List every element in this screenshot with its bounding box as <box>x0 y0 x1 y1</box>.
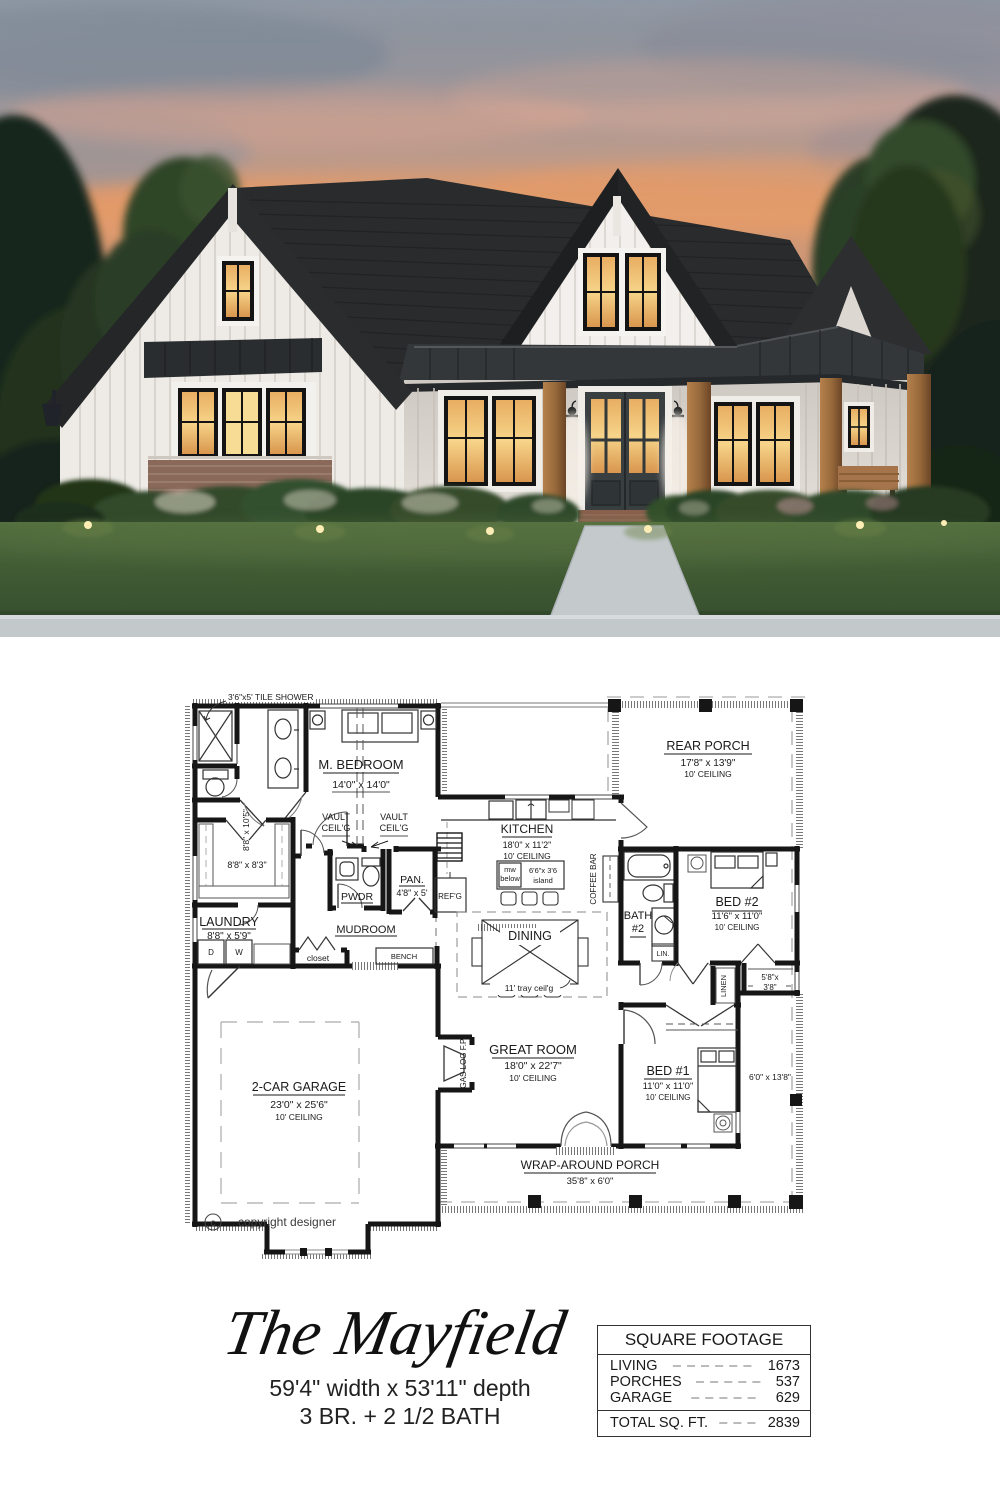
svg-text:8'8" x 8'3": 8'8" x 8'3" <box>227 860 266 870</box>
svg-text:COFFEE BAR: COFFEE BAR <box>589 853 598 904</box>
svg-text:17'8" x 13'9": 17'8" x 13'9" <box>681 758 736 769</box>
svg-text:VAULT: VAULT <box>322 812 350 822</box>
svg-text:REF'G: REF'G <box>438 892 462 901</box>
svg-text:CEIL'G: CEIL'G <box>322 823 351 833</box>
svg-text:below: below <box>500 874 520 883</box>
svg-text:LINEN: LINEN <box>719 975 728 997</box>
svg-text:35'8" x 6'0": 35'8" x 6'0" <box>567 1176 614 1187</box>
svg-text:5'8"x: 5'8"x <box>761 973 778 982</box>
svg-text:10' CEILING: 10' CEILING <box>503 851 550 861</box>
svg-text:KITCHEN: KITCHEN <box>501 822 554 836</box>
svg-text:6'6"x 3'6: 6'6"x 3'6 <box>529 866 557 875</box>
svg-text:VAULT: VAULT <box>380 812 408 822</box>
svg-text:c: c <box>211 1218 216 1229</box>
svg-text:11'0" x 11'0": 11'0" x 11'0" <box>643 1081 694 1092</box>
svg-text:#2: #2 <box>632 923 644 935</box>
svg-text:10' CEILING: 10' CEILING <box>715 923 760 932</box>
svg-text:8'8" x 10'5": 8'8" x 10'5" <box>241 809 251 851</box>
svg-text:W: W <box>235 948 243 957</box>
svg-text:island: island <box>533 876 553 885</box>
svg-text:8'8" x 5'9": 8'8" x 5'9" <box>207 931 251 942</box>
svg-text:3'6"x5' TILE SHOWER: 3'6"x5' TILE SHOWER <box>228 692 313 702</box>
svg-text:PWDR: PWDR <box>341 891 373 903</box>
svg-text:2-CAR GARAGE: 2-CAR GARAGE <box>252 1080 346 1094</box>
svg-text:11' tray ceil'g: 11' tray ceil'g <box>505 983 554 993</box>
svg-text:LIN.: LIN. <box>657 951 670 958</box>
svg-text:CEIL'G: CEIL'G <box>380 823 409 833</box>
svg-text:LAUNDRY: LAUNDRY <box>199 915 259 929</box>
svg-text:WRAP-AROUND PORCH: WRAP-AROUND PORCH <box>521 1158 660 1172</box>
svg-text:10' CEILING: 10' CEILING <box>684 769 731 779</box>
svg-text:PAN.: PAN. <box>400 874 424 886</box>
svg-text:10' CEILING: 10' CEILING <box>275 1112 322 1122</box>
svg-text:11'6" x 11'0": 11'6" x 11'0" <box>712 911 763 922</box>
svg-text:BED #2: BED #2 <box>715 895 758 909</box>
svg-text:18'0" x 11'2": 18'0" x 11'2" <box>503 840 552 850</box>
svg-text:10' CEILING: 10' CEILING <box>509 1073 556 1083</box>
svg-text:BED #1: BED #1 <box>646 1064 689 1078</box>
svg-text:mw: mw <box>504 865 516 874</box>
svg-text:GREAT ROOM: GREAT ROOM <box>489 1042 577 1057</box>
svg-text:10' CEILING: 10' CEILING <box>646 1093 691 1102</box>
svg-text:MUDROOM: MUDROOM <box>336 924 395 936</box>
svg-text:DINING: DINING <box>508 929 552 943</box>
svg-text:23'0" x 25'6": 23'0" x 25'6" <box>270 1099 328 1111</box>
svg-text:BENCH: BENCH <box>391 952 417 961</box>
svg-text:18'0" x 22'7": 18'0" x 22'7" <box>504 1060 562 1072</box>
svg-text:3'8": 3'8" <box>763 983 776 992</box>
svg-text:GAS LOG F.P.: GAS LOG F.P. <box>459 1038 468 1089</box>
svg-text:BATH: BATH <box>624 910 653 922</box>
svg-text:copyright designer: copyright designer <box>238 1215 336 1229</box>
svg-text:D: D <box>208 948 214 957</box>
svg-text:REAR PORCH: REAR PORCH <box>666 739 749 753</box>
svg-text:closet: closet <box>307 953 330 963</box>
svg-text:6'0" x 13'8": 6'0" x 13'8" <box>749 1072 791 1082</box>
svg-text:4'8" x 5': 4'8" x 5' <box>396 888 427 898</box>
svg-text:M. BEDROOM: M. BEDROOM <box>318 757 403 772</box>
svg-text:14'0" x 14'0": 14'0" x 14'0" <box>332 779 390 791</box>
